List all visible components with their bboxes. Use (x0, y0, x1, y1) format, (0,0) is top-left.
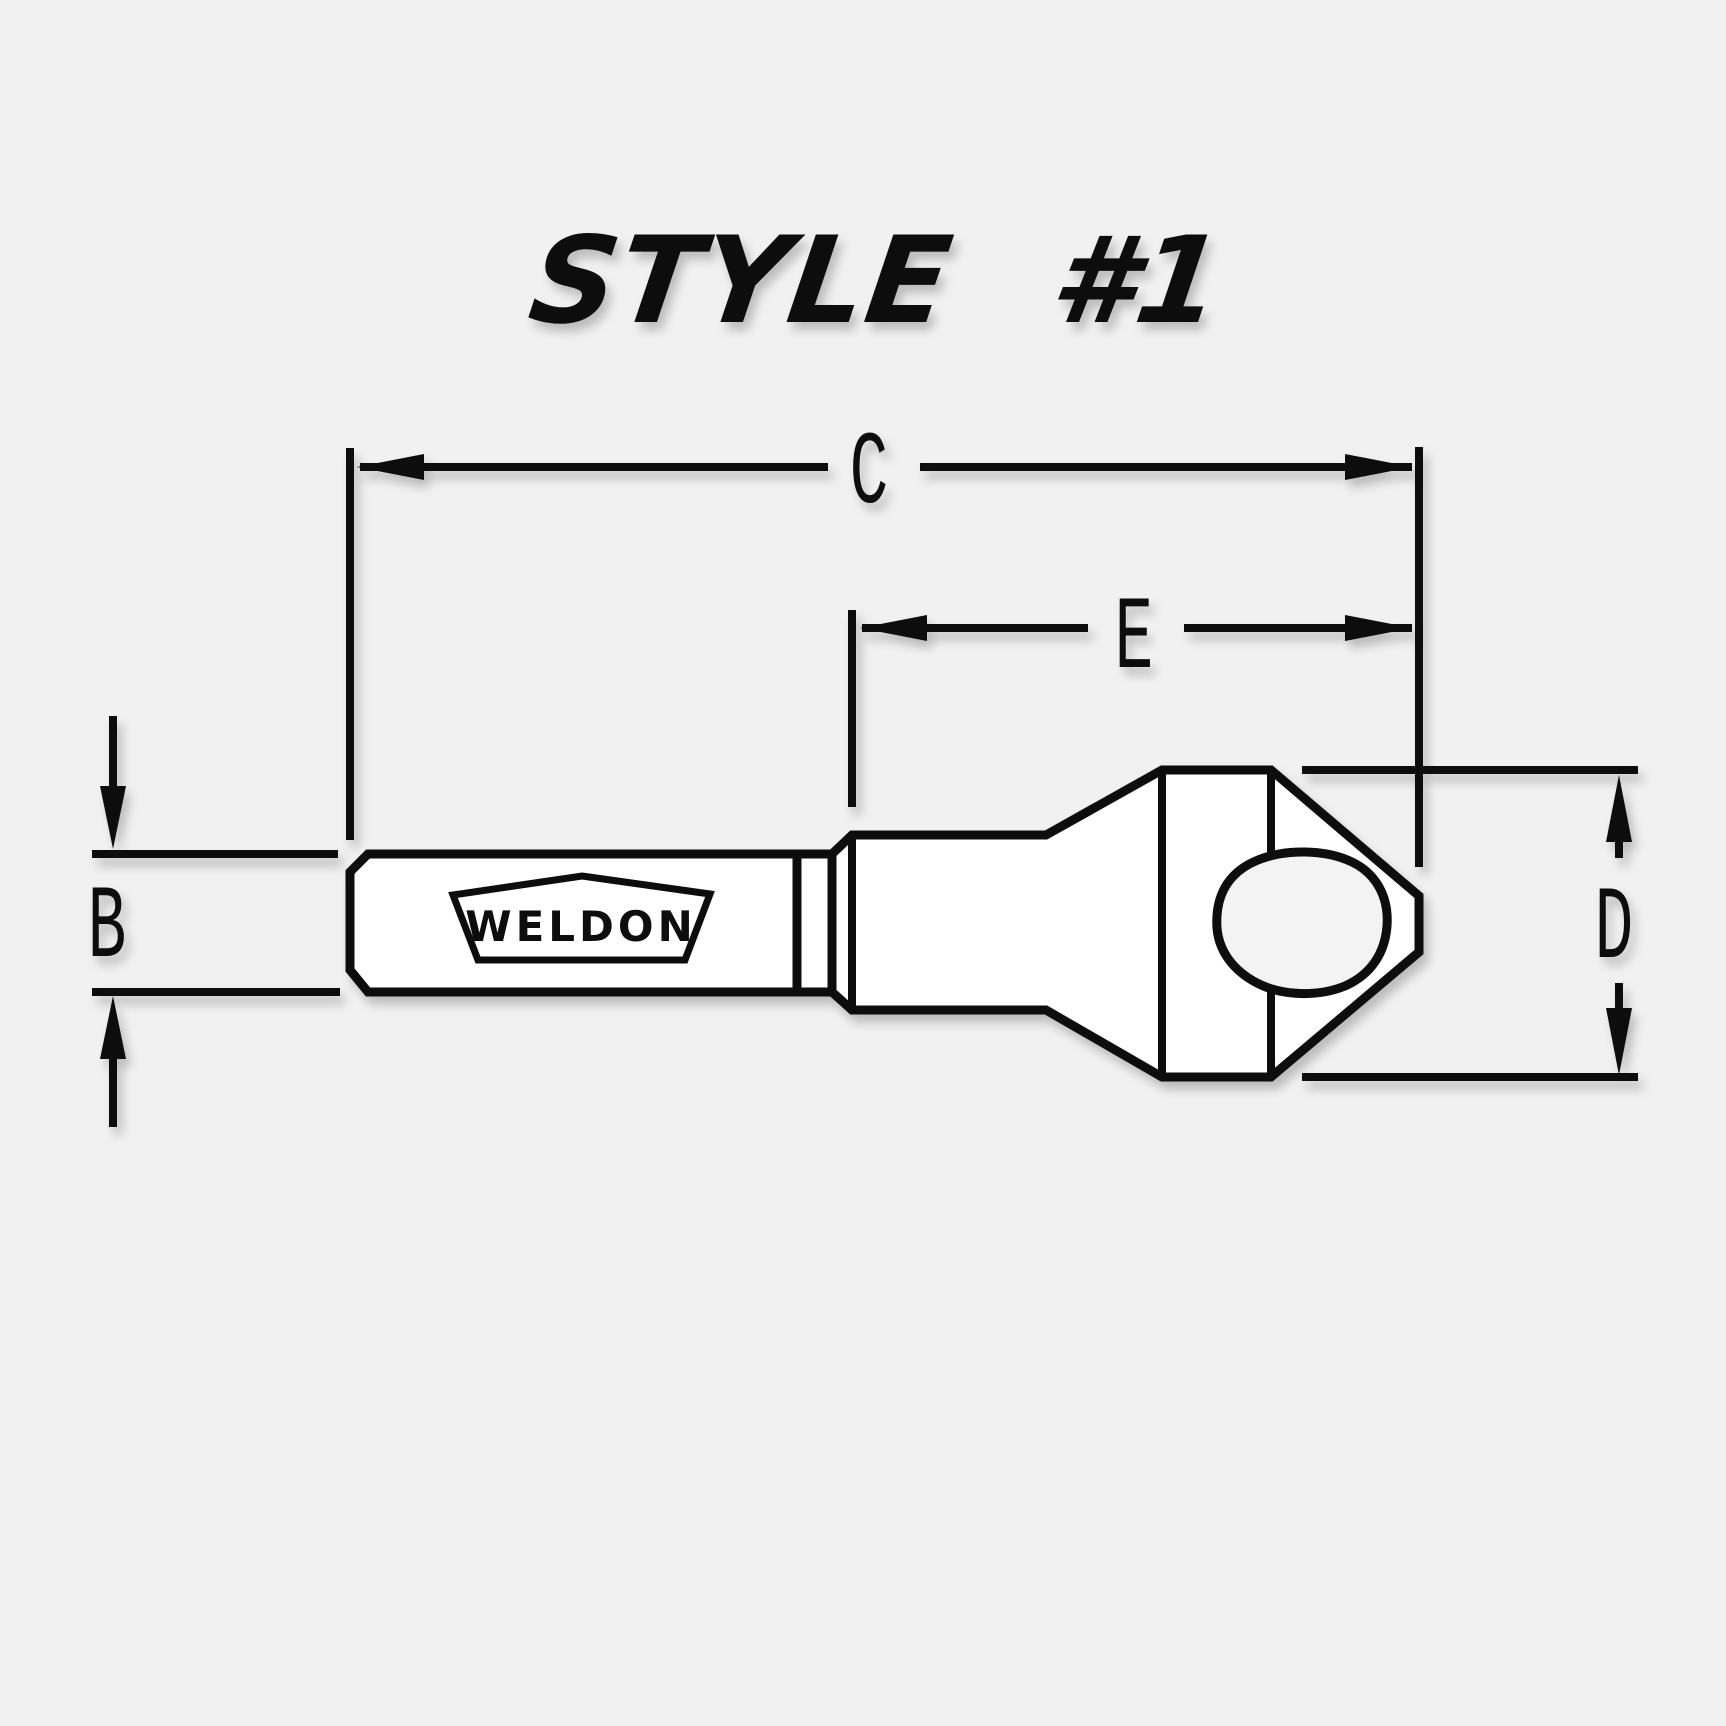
pilot-hole (1217, 852, 1387, 994)
dim-e-arrow-right-icon (1345, 615, 1412, 641)
dim-d-arrow-down-icon (1606, 1008, 1632, 1075)
dim-e-arrow-left-icon (860, 615, 927, 641)
dim-b-arrow-down-icon (100, 786, 126, 849)
countersink-diagram: STYLE #1 C E (0, 0, 1726, 1726)
dim-c-label: C (850, 415, 889, 533)
dim-c-arrow-left-icon (357, 454, 424, 480)
dim-c-arrow-right-icon (1345, 454, 1412, 480)
tool-collar (797, 854, 832, 992)
dim-b-label: B (88, 869, 127, 987)
dim-d-arrow-up-icon (1606, 775, 1632, 842)
dim-d-label: D (1595, 870, 1634, 988)
dimension-b: B (88, 716, 340, 1127)
page-title: STYLE #1 (522, 212, 1232, 351)
dim-b-arrow-up-icon (100, 996, 126, 1059)
weldon-logo-text: WELDON (465, 902, 697, 951)
dim-e-label: E (1115, 580, 1154, 698)
countersink-tool: WELDON (350, 770, 1419, 1077)
technical-drawing-page: STYLE #1 C E (0, 0, 1726, 1726)
